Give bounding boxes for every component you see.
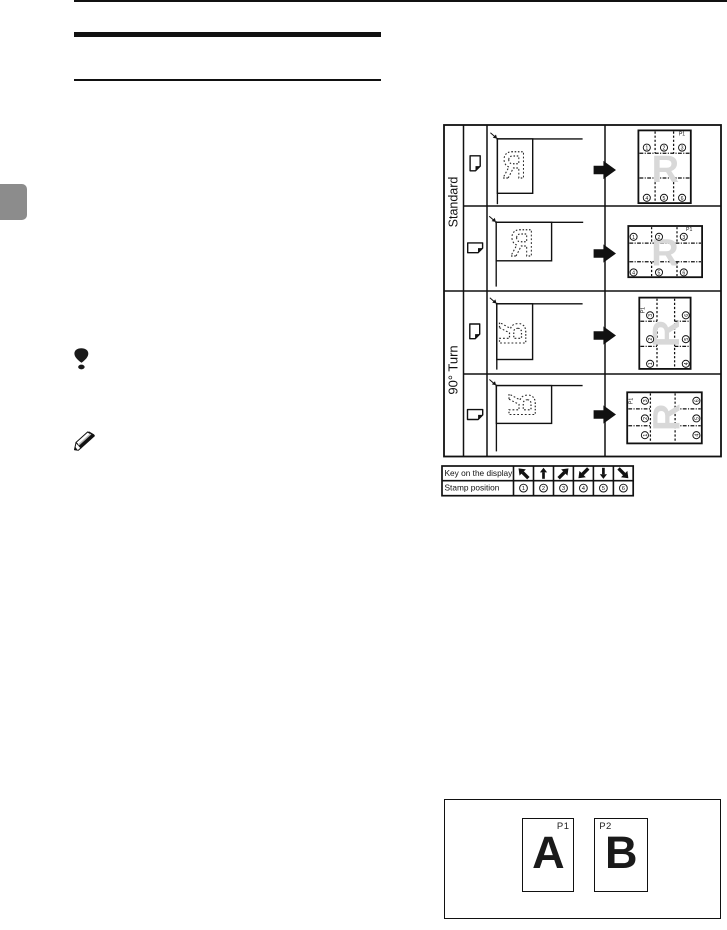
svg-text:5: 5 [602,486,605,492]
svg-text:6: 6 [682,270,685,276]
svg-text:90° Turn: 90° Turn [446,345,461,394]
svg-text:3: 3 [562,486,565,492]
svg-text:R: R [646,320,688,347]
svg-text:2: 2 [542,486,545,492]
svg-text:6: 6 [694,399,700,402]
svg-text:4: 4 [632,270,635,276]
svg-text:1: 1 [522,486,525,492]
svg-text:4: 4 [645,196,648,202]
svg-text:6: 6 [622,486,625,492]
svg-text:4: 4 [684,362,690,365]
svg-text:1: 1 [632,235,635,241]
svg-text:2: 2 [658,235,661,241]
svg-text:R: R [647,403,689,430]
svg-text:5: 5 [658,270,661,276]
svg-text:Standard: Standard [447,177,461,228]
svg-text:2: 2 [643,417,649,420]
svg-text:2: 2 [663,146,666,152]
svg-text:R: R [491,322,533,345]
svg-text:P1: P1 [679,132,685,138]
svg-text:1: 1 [643,434,649,437]
svg-text:P1: P1 [686,227,692,233]
svg-text:R: R [510,223,533,265]
svg-text:3: 3 [681,146,684,152]
svg-text:6: 6 [681,196,684,202]
svg-text:3: 3 [643,399,649,402]
svg-text:6: 6 [684,314,690,317]
svg-text:1: 1 [645,146,648,152]
svg-text:Key on the display: Key on the display [445,468,514,478]
svg-text:1: 1 [648,362,654,365]
svg-text:3: 3 [682,235,685,241]
svg-text:P1: P1 [628,398,634,404]
svg-text:3: 3 [648,314,654,317]
svg-text:R: R [501,393,543,416]
svg-text:R: R [502,144,525,186]
svg-text:5: 5 [684,338,690,341]
svg-text:4: 4 [694,434,700,437]
svg-text:Stamp position: Stamp position [445,482,500,492]
svg-text:5: 5 [694,417,700,420]
svg-text:P1: P1 [640,307,646,313]
svg-text:5: 5 [663,196,666,202]
svg-text:R: R [651,232,678,274]
svg-text:R: R [652,149,679,191]
svg-text:2: 2 [648,338,654,341]
